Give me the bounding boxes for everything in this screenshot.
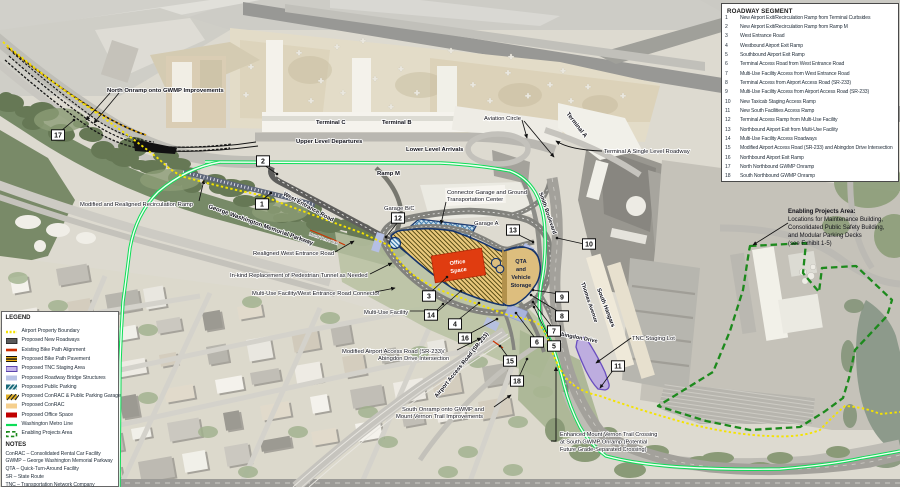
svg-text:Enhanced Mount Vernon Trail Cr: Enhanced Mount Vernon Trail Crossing [560, 432, 657, 438]
svg-text:Aviation Circle: Aviation Circle [484, 116, 521, 122]
svg-text:11: 11 [614, 364, 622, 371]
svg-text:Modified Airport Access Road (: Modified Airport Access Road (SR-233)/ [342, 349, 445, 355]
svg-text:Multi-Use Facility: Multi-Use Facility [364, 310, 408, 316]
svg-text:and: and [516, 267, 527, 273]
svg-text:South Onramp onto GWMP and: South Onramp onto GWMP and [402, 407, 484, 413]
svg-text:In-kind Replacement of Pedestr: In-kind Replacement of Pedestrian Tunnel… [230, 273, 368, 279]
svg-text:7: 7 [552, 329, 556, 336]
svg-text:Ramp M: Ramp M [377, 171, 400, 177]
svg-text:Terminal B: Terminal B [382, 120, 412, 126]
svg-text:Terminal C: Terminal C [316, 120, 346, 126]
svg-text:14: 14 [427, 313, 435, 320]
svg-text:Realigned West Entrance Road: Realigned West Entrance Road [253, 251, 334, 257]
svg-text:Storage: Storage [511, 283, 532, 289]
svg-text:12: 12 [394, 216, 402, 223]
svg-text:Abingdon Drive Intersection: Abingdon Drive Intersection [378, 356, 449, 362]
svg-text:(see Exhibit 1-5): (see Exhibit 1-5) [788, 241, 832, 247]
svg-text:Mount Vernon Trail Improvement: Mount Vernon Trail Improvements [396, 414, 483, 420]
svg-text:18: 18 [513, 379, 521, 386]
svg-text:Multi-Use Facility/West Entran: Multi-Use Facility/West Entrance Road Co… [252, 291, 380, 297]
svg-text:Garage B/C: Garage B/C [384, 206, 415, 212]
svg-text:1: 1 [260, 202, 264, 209]
svg-text:Upper Level Departures: Upper Level Departures [296, 139, 363, 145]
svg-text:17: 17 [54, 133, 62, 140]
svg-text:Connector Garage and Ground: Connector Garage and Ground [447, 190, 527, 196]
svg-text:4: 4 [453, 322, 457, 329]
svg-text:Lower Level Arrivals: Lower Level Arrivals [406, 147, 464, 153]
svg-text:Enabling Projects Area:: Enabling Projects Area: [788, 209, 855, 215]
svg-text:9: 9 [560, 295, 564, 302]
svg-text:Garage A: Garage A [474, 221, 499, 227]
svg-text:QTA: QTA [515, 259, 526, 265]
svg-text:and Modular Parking Decks: and Modular Parking Decks [788, 233, 862, 239]
svg-text:3: 3 [427, 294, 431, 301]
svg-text:Modified and Realigned Recircu: Modified and Realigned Recirculation Ram… [80, 202, 193, 208]
svg-text:Terminal A Single Level Roadwa: Terminal A Single Level Roadway [604, 149, 690, 155]
svg-text:15: 15 [506, 359, 514, 366]
svg-text:at South GWMP Onramp (Potentia: at South GWMP Onramp (Potential [560, 440, 647, 446]
svg-text:2: 2 [261, 159, 265, 166]
svg-text:Locations for Maintenance Buil: Locations for Maintenance Building, [788, 217, 883, 223]
svg-text:6: 6 [535, 340, 539, 347]
svg-text:13: 13 [509, 228, 517, 235]
svg-text:5: 5 [552, 344, 556, 351]
svg-text:TNC Staging Lot: TNC Staging Lot [632, 336, 675, 342]
svg-text:10: 10 [585, 242, 593, 249]
svg-text:Future Grade-Separated Crossin: Future Grade-Separated Crossing) [560, 447, 647, 453]
svg-text:Vehicle: Vehicle [511, 275, 530, 281]
svg-text:8: 8 [560, 314, 564, 321]
svg-text:Consolidated Public Safety Bui: Consolidated Public Safety Building, [788, 225, 885, 231]
svg-text:North Onramp onto GWMP Improve: North Onramp onto GWMP Improvements [107, 88, 224, 94]
svg-text:Transportation Center: Transportation Center [447, 197, 503, 203]
svg-text:16: 16 [461, 336, 469, 343]
